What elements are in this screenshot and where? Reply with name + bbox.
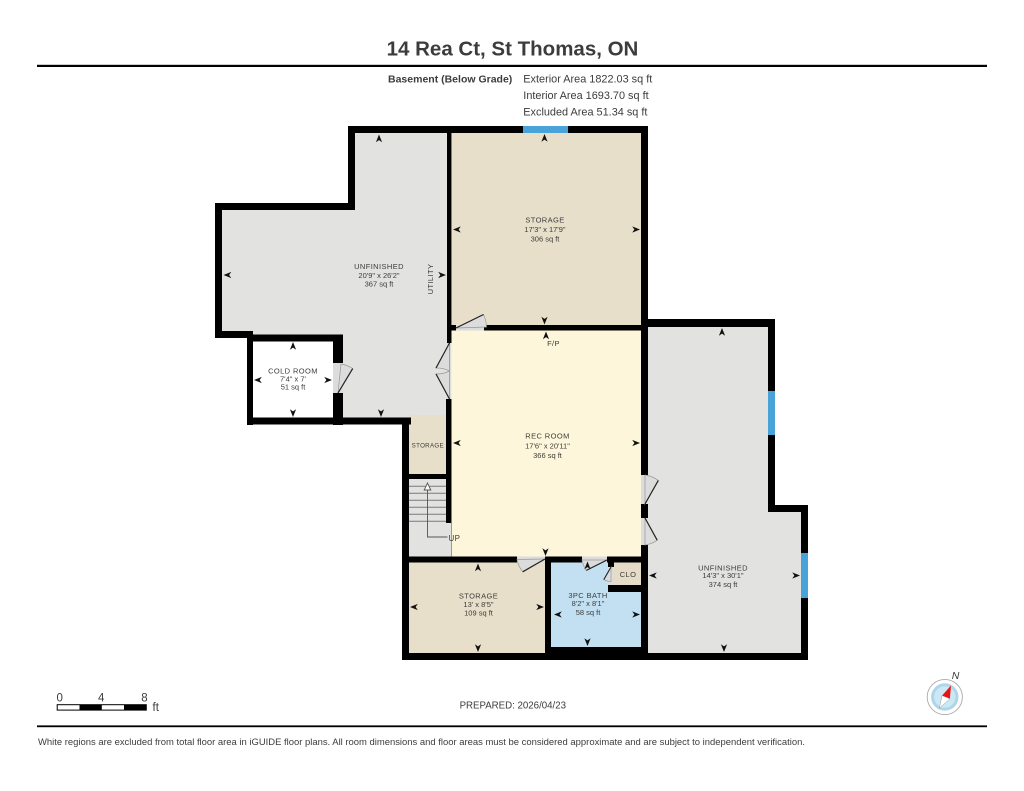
svg-text:N: N xyxy=(952,670,960,682)
svg-text:F/P: F/P xyxy=(547,339,560,348)
svg-text:366 sq ft: 366 sq ft xyxy=(533,451,563,460)
svg-text:Excluded Area 51.34 sq ft: Excluded Area 51.34 sq ft xyxy=(523,106,647,118)
svg-text:14 Rea Ct, St Thomas, ON: 14 Rea Ct, St Thomas, ON xyxy=(387,38,639,61)
svg-text:ft: ft xyxy=(153,702,160,714)
svg-text:Basement (Below Grade): Basement (Below Grade) xyxy=(388,74,512,86)
svg-text:White regions are excluded fro: White regions are excluded from total fl… xyxy=(38,737,805,748)
svg-text:REC ROOM: REC ROOM xyxy=(525,432,569,441)
svg-text:4: 4 xyxy=(98,693,105,705)
svg-text:8'2" x 8'1": 8'2" x 8'1" xyxy=(572,599,605,608)
svg-text:8: 8 xyxy=(141,693,147,705)
svg-text:51 sq ft: 51 sq ft xyxy=(281,383,307,392)
svg-text:367 sq ft: 367 sq ft xyxy=(365,279,395,288)
svg-text:Interior Area 1693.70 sq ft: Interior Area 1693.70 sq ft xyxy=(523,90,648,102)
svg-text:UP: UP xyxy=(449,534,461,543)
svg-text:Exterior Area 1822.03 sq ft: Exterior Area 1822.03 sq ft xyxy=(523,74,652,86)
svg-text:109 sq ft: 109 sq ft xyxy=(464,609,494,618)
svg-text:UTILITY: UTILITY xyxy=(426,264,435,295)
svg-text:58 sq ft: 58 sq ft xyxy=(576,608,602,617)
svg-text:CLO: CLO xyxy=(620,570,637,579)
svg-text:UNFINISHED: UNFINISHED xyxy=(354,262,404,271)
svg-text:17'3" x 17'9": 17'3" x 17'9" xyxy=(524,225,565,234)
svg-text:0: 0 xyxy=(56,693,62,705)
svg-text:306 sq ft: 306 sq ft xyxy=(531,234,561,243)
svg-text:STORAGE: STORAGE xyxy=(412,443,444,450)
svg-text:14'3" x 30'1": 14'3" x 30'1" xyxy=(702,571,743,580)
svg-text:PREPARED: 2026/04/23: PREPARED: 2026/04/23 xyxy=(460,701,566,712)
svg-text:374 sq ft: 374 sq ft xyxy=(709,580,739,589)
svg-text:STORAGE: STORAGE xyxy=(525,216,564,225)
svg-text:17'6" x 20'11": 17'6" x 20'11" xyxy=(525,442,570,451)
